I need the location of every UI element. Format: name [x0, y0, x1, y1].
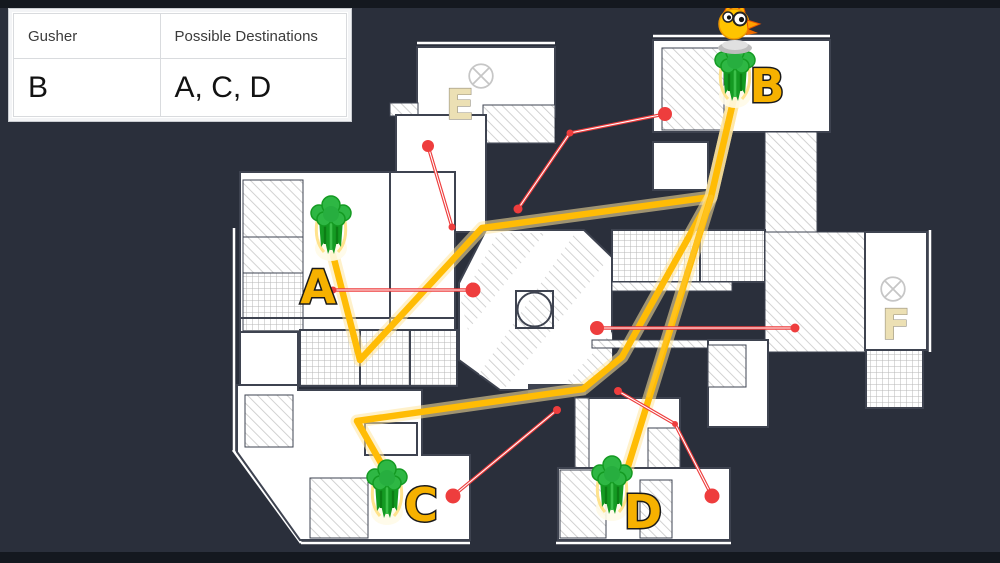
- room-hatch: [310, 478, 368, 538]
- room-corridor: [653, 142, 708, 190]
- callout-dot: [658, 107, 672, 121]
- room-hatch: [708, 345, 746, 387]
- gusher-label-A: A: [300, 260, 336, 314]
- callout-dot: [466, 283, 481, 298]
- gusher-A[interactable]: [311, 196, 351, 261]
- callout-dot: [672, 421, 678, 427]
- callout-dot: [422, 140, 434, 152]
- letterbox-top: [0, 0, 1000, 8]
- site-label-F: F: [882, 300, 911, 349]
- gusher-label-D: D: [624, 485, 662, 539]
- callout-dot: [705, 489, 720, 504]
- gusher-label-B: B: [749, 59, 784, 113]
- callout-dot: [567, 130, 574, 137]
- letterbox-bottom: [0, 552, 1000, 563]
- site-label-E: E: [446, 80, 475, 129]
- room-hatch: [612, 282, 732, 291]
- room-hatch: [648, 428, 680, 470]
- destination-table: Gusher Possible Destinations B A, C, D: [13, 13, 347, 117]
- room-hatch: [243, 237, 303, 273]
- table-header-gusher: Gusher: [14, 14, 161, 59]
- table-cell-gusher: B: [14, 59, 161, 117]
- destination-table-panel: Gusher Possible Destinations B A, C, D: [8, 8, 352, 122]
- callout-dot: [614, 387, 622, 395]
- callout-dot: [590, 321, 604, 335]
- room-hatch: [765, 132, 817, 234]
- table-cell-destinations: A, C, D: [160, 59, 346, 117]
- callout-dot: [553, 406, 561, 414]
- callout-dot: [446, 489, 461, 504]
- table-header-destinations: Possible Destinations: [160, 14, 346, 59]
- room-hatch: [245, 395, 293, 447]
- room-hatch: [483, 105, 555, 143]
- room-hatch: [765, 232, 865, 352]
- callout-dot: [791, 324, 800, 333]
- gusher-icon[interactable]: [311, 196, 351, 261]
- gusher-icon[interactable]: [367, 460, 407, 525]
- room-hatch: [243, 180, 303, 237]
- room-grid: [866, 350, 923, 408]
- gusher-label-C: C: [404, 478, 438, 532]
- gusher-C[interactable]: [367, 460, 407, 525]
- callout-dot: [449, 224, 456, 231]
- game-map-stage: ABCDEF Gusher Possible Destinations B A,…: [0, 0, 1000, 563]
- room-grid: [243, 273, 303, 331]
- callout-dot: [514, 205, 523, 214]
- room-hatch: [575, 398, 589, 470]
